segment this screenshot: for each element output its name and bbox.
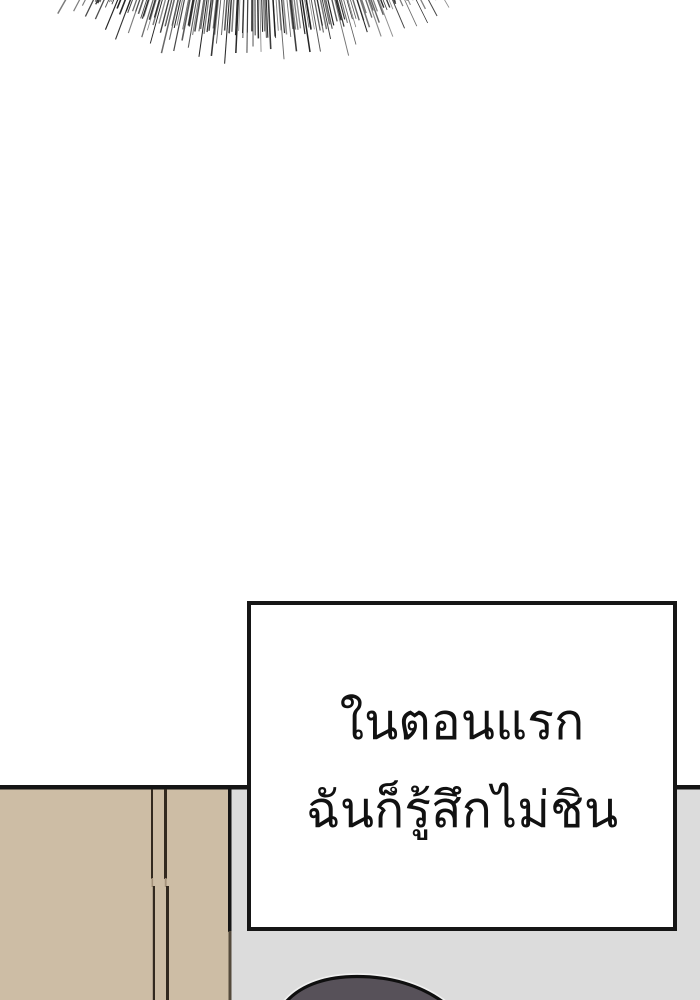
comic-panel: ในตอนแรก ฉันก็รู้สึกไม่ชิน [0,0,700,1000]
hatch-stroke [247,0,248,53]
wardrobe-seam-right-upper [164,789,167,879]
hatch-stroke [116,0,143,39]
speech-line-1: ในตอนแรก [340,678,585,766]
wardrobe-seam-left-gap [152,878,154,887]
wardrobe-seam-right-gap [165,878,167,887]
wardrobe-seam-left-lower [153,886,155,1000]
hatch-stroke [275,0,278,31]
hatch-stroke [232,0,234,32]
burst-hatch-art [0,0,700,82]
hatch-stroke [263,0,264,31]
hatch-stroke [105,0,129,30]
hatch-stroke [268,0,271,49]
wardrobe-edge-line-lower [229,931,232,1000]
hatch-stroke [261,0,262,32]
speech-bubble: ในตอนแรก ฉันก็รู้สึกไม่ชิน [247,601,677,931]
wardrobe-edge-line [228,789,232,932]
wardrobe-panel [0,789,231,1000]
hatch-stroke [239,0,241,31]
hatch-stroke [273,0,276,38]
hatch-stroke [389,0,417,26]
hatch-stroke [260,0,261,52]
wardrobe-seam-left-upper [151,789,153,879]
speech-line-2: ฉันก็รู้สึกไม่ชิน [306,766,618,854]
hatch-stroke [258,0,259,38]
wardrobe-seam-right-lower [166,886,169,1000]
